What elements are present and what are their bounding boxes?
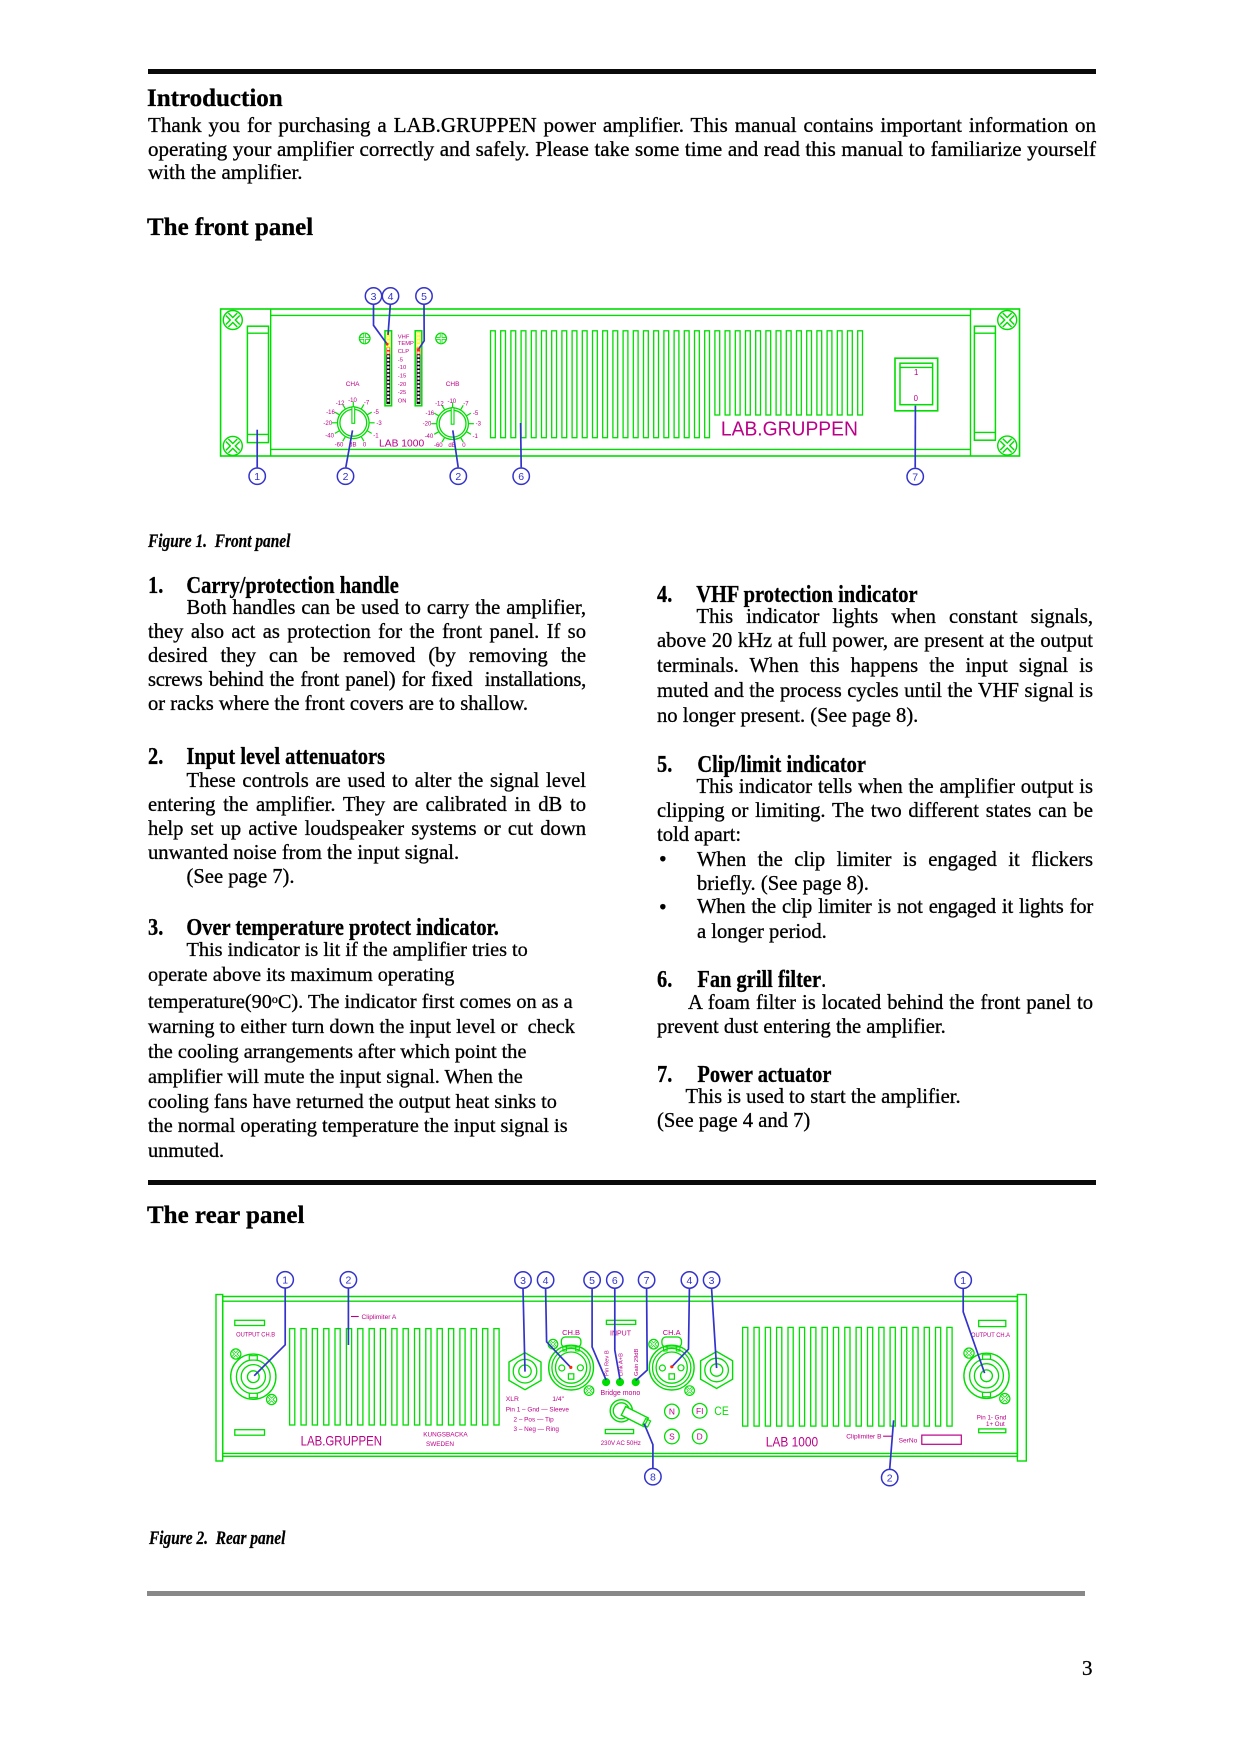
svg-text:Bridge mono: Bridge mono bbox=[601, 1390, 641, 1397]
svg-text:-5: -5 bbox=[398, 357, 403, 363]
svg-text:ON: ON bbox=[398, 399, 407, 405]
svg-text:4: 4 bbox=[543, 1275, 549, 1287]
svg-text:VHF: VHF bbox=[398, 335, 410, 341]
svg-text:-40: -40 bbox=[425, 434, 434, 440]
svg-text:5: 5 bbox=[421, 291, 427, 303]
svg-text:3: 3 bbox=[371, 291, 377, 303]
svg-text:2: 2 bbox=[455, 471, 461, 483]
svg-text:N: N bbox=[669, 1407, 675, 1417]
svg-text:-5: -5 bbox=[473, 411, 479, 417]
svg-text:1: 1 bbox=[960, 1275, 966, 1287]
svg-text:3: 3 bbox=[709, 1275, 715, 1287]
svg-text:-25: -25 bbox=[398, 390, 406, 396]
svg-text:-3: -3 bbox=[376, 421, 382, 427]
svg-text:Pin 1 – Gnd — Sleeve: Pin 1 – Gnd — Sleeve bbox=[506, 1406, 570, 1413]
svg-text:CHA: CHA bbox=[346, 381, 360, 388]
svg-text:Cliplimiter B: Cliplimiter B bbox=[846, 1434, 882, 1441]
svg-text:-16: -16 bbox=[326, 410, 335, 416]
svg-text:2: 2 bbox=[345, 1275, 351, 1287]
svg-text:5: 5 bbox=[589, 1275, 595, 1287]
svg-text:Cliplimiter A: Cliplimiter A bbox=[362, 1314, 397, 1321]
svg-text:-7: -7 bbox=[364, 401, 370, 407]
svg-text:-10: -10 bbox=[348, 398, 357, 404]
svg-text:-10: -10 bbox=[398, 365, 406, 371]
svg-text:4: 4 bbox=[686, 1275, 692, 1287]
svg-text:-12: -12 bbox=[336, 401, 345, 407]
svg-text:-60: -60 bbox=[335, 442, 344, 448]
svg-text:0: 0 bbox=[462, 443, 466, 449]
svg-text:-20: -20 bbox=[423, 422, 432, 428]
svg-text:1/4": 1/4" bbox=[552, 1396, 564, 1403]
svg-text:3: 3 bbox=[520, 1275, 526, 1287]
svg-text:SWEDEN: SWEDEN bbox=[426, 1441, 454, 1448]
svg-text:-40: -40 bbox=[325, 433, 334, 439]
svg-text:D: D bbox=[697, 1432, 703, 1442]
svg-text:Gain 29dB: Gain 29dB bbox=[634, 1348, 640, 1376]
svg-text:-20: -20 bbox=[398, 382, 406, 388]
svg-text:S: S bbox=[669, 1432, 675, 1442]
svg-text:1: 1 bbox=[254, 471, 260, 483]
svg-text:1+ Out: 1+ Out bbox=[986, 1421, 1005, 1428]
svg-text:1: 1 bbox=[282, 1275, 288, 1287]
svg-text:4: 4 bbox=[388, 291, 394, 303]
svg-text:XLR: XLR bbox=[506, 1396, 519, 1403]
svg-text:8: 8 bbox=[650, 1472, 656, 1484]
svg-text:-20: -20 bbox=[323, 421, 332, 427]
svg-text:-60: -60 bbox=[434, 443, 443, 449]
svg-text:230V AC 50Hz: 230V AC 50Hz bbox=[601, 1440, 641, 1447]
svg-text:KUNGSBACKA: KUNGSBACKA bbox=[423, 1432, 468, 1439]
svg-text:INPUT: INPUT bbox=[610, 1331, 632, 1338]
svg-text:CE: CE bbox=[714, 1406, 729, 1418]
svg-text:CLP: CLP bbox=[398, 349, 409, 355]
svg-text:LAB 1000: LAB 1000 bbox=[766, 1434, 818, 1449]
svg-text:CH.B: CH.B bbox=[562, 1328, 580, 1337]
svg-text:-3: -3 bbox=[476, 422, 482, 428]
svg-text:-16: -16 bbox=[425, 411, 434, 417]
svg-text:2: 2 bbox=[887, 1472, 893, 1484]
svg-text:0: 0 bbox=[914, 394, 919, 403]
svg-text:FI: FI bbox=[696, 1406, 703, 1416]
svg-text:2 – Pos — Tip: 2 – Pos — Tip bbox=[514, 1416, 555, 1423]
svg-text:6: 6 bbox=[612, 1275, 618, 1287]
svg-text:CH.A: CH.A bbox=[663, 1328, 681, 1337]
svg-text:LAB 1000: LAB 1000 bbox=[379, 438, 425, 449]
svg-text:OUTPUT CH.A: OUTPUT CH.A bbox=[971, 1332, 1011, 1339]
svg-text:-15: -15 bbox=[398, 373, 406, 379]
svg-text:1: 1 bbox=[914, 368, 918, 377]
svg-text:OUTPUT CH.B: OUTPUT CH.B bbox=[236, 1332, 275, 1339]
svg-text:2: 2 bbox=[343, 471, 349, 483]
svg-text:Pin Rev B: Pin Rev B bbox=[605, 1350, 611, 1376]
svg-text:CHB: CHB bbox=[446, 381, 460, 388]
svg-text:-1: -1 bbox=[473, 434, 479, 440]
svg-text:7: 7 bbox=[644, 1275, 650, 1287]
svg-text:0: 0 bbox=[363, 442, 367, 448]
svg-text:SerNo: SerNo bbox=[899, 1437, 918, 1444]
svg-text:3 – Neg — Ring: 3 – Neg — Ring bbox=[514, 1426, 560, 1433]
svg-text:-10: -10 bbox=[447, 399, 456, 405]
svg-text:LAB.GRUPPEN: LAB.GRUPPEN bbox=[721, 418, 858, 441]
svg-text:TEMP: TEMP bbox=[398, 341, 414, 347]
svg-text:-12: -12 bbox=[435, 402, 444, 408]
svg-text:6: 6 bbox=[518, 471, 524, 483]
svg-text:-7: -7 bbox=[463, 401, 469, 407]
svg-text:7: 7 bbox=[912, 471, 918, 483]
svg-text:-5: -5 bbox=[374, 410, 380, 416]
svg-text:LAB.GRUPPEN: LAB.GRUPPEN bbox=[301, 1432, 382, 1448]
